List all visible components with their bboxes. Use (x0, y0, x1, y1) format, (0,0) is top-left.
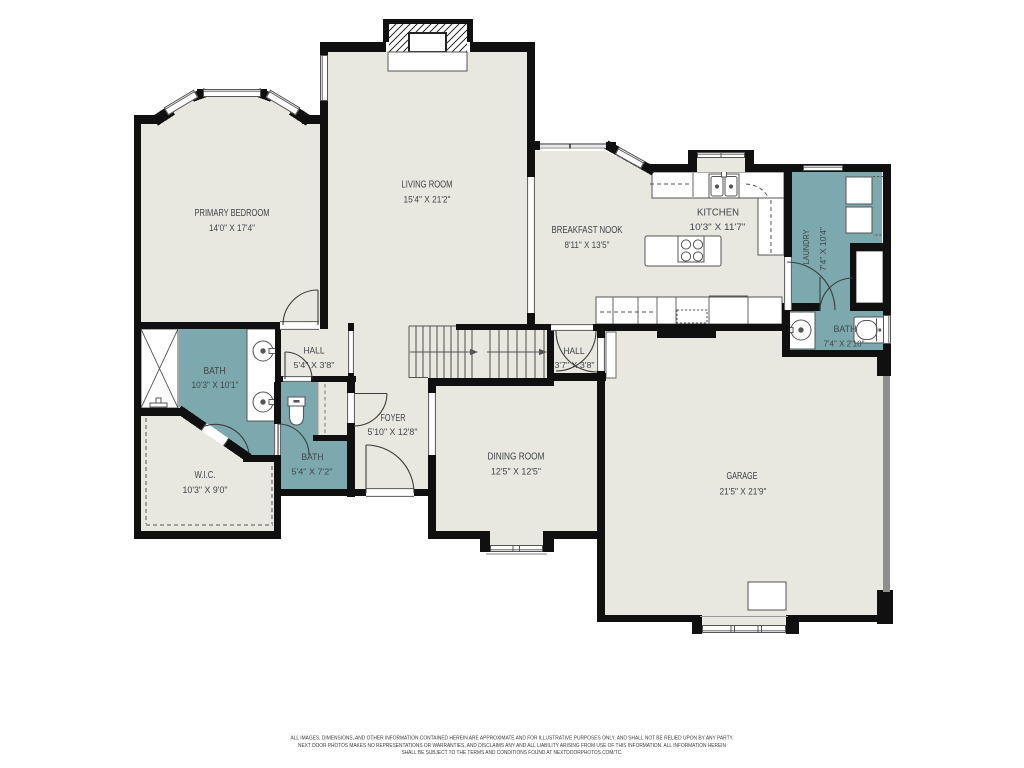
svg-text:3'7" X 3'8": 3'7" X 3'8" (555, 360, 595, 370)
svg-text:KITCHEN: KITCHEN (697, 208, 739, 219)
svg-text:7'4" X 2'10": 7'4" X 2'10" (824, 339, 865, 349)
svg-text:BREAKFAST NOOK: BREAKFAST NOOK (552, 225, 623, 236)
svg-text:15'4" X 21'2": 15'4" X 21'2" (404, 195, 451, 205)
svg-text:BATH: BATH (834, 324, 857, 334)
svg-text:10'3" X 11'7": 10'3" X 11'7" (690, 222, 746, 232)
svg-text:LAUNDRY: LAUNDRY (802, 229, 811, 264)
svg-text:SHALL BE SUBJECT TO THE TERMS: SHALL BE SUBJECT TO THE TERMS AND CONDIT… (402, 750, 623, 756)
svg-text:10'3" X 10'1": 10'3" X 10'1" (192, 380, 239, 390)
svg-text:21'5" X 21'9": 21'5" X 21'9" (720, 487, 767, 497)
svg-text:12'5" X 12'5": 12'5" X 12'5" (491, 467, 541, 477)
svg-text:HALL: HALL (304, 346, 325, 356)
svg-text:7'4" X 10'4": 7'4" X 10'4" (819, 227, 828, 271)
svg-text:LIVING ROOM: LIVING ROOM (402, 180, 453, 191)
svg-text:10'3" X 9'0": 10'3" X 9'0" (183, 485, 228, 495)
svg-text:DINING ROOM: DINING ROOM (488, 452, 545, 463)
svg-text:NEXT DOOR PHOTOS MAKES NO REPR: NEXT DOOR PHOTOS MAKES NO REPRESENTATION… (298, 743, 726, 749)
svg-text:5'4" X 7'2": 5'4" X 7'2" (292, 467, 333, 477)
svg-text:BATH: BATH (204, 366, 226, 377)
svg-text:W.I.C.: W.I.C. (195, 470, 216, 481)
svg-text:5'10" X 12'8": 5'10" X 12'8" (368, 427, 418, 437)
svg-text:GARAGE: GARAGE (727, 471, 758, 482)
svg-text:FOYER: FOYER (381, 413, 406, 424)
svg-text:PRIMARY BEDROOM: PRIMARY BEDROOM (195, 208, 270, 219)
svg-text:8'11" X 13'5": 8'11" X 13'5" (565, 240, 610, 250)
svg-text:HALL: HALL (564, 346, 585, 356)
svg-text:ALL IMAGES, DIMENSIONS, AND OT: ALL IMAGES, DIMENSIONS, AND OTHER INFORM… (291, 736, 734, 742)
svg-text:BATH: BATH (302, 452, 324, 462)
svg-text:5'4" X 3'8": 5'4" X 3'8" (294, 360, 335, 370)
svg-text:14'0" X 17'4": 14'0" X 17'4" (209, 223, 255, 233)
